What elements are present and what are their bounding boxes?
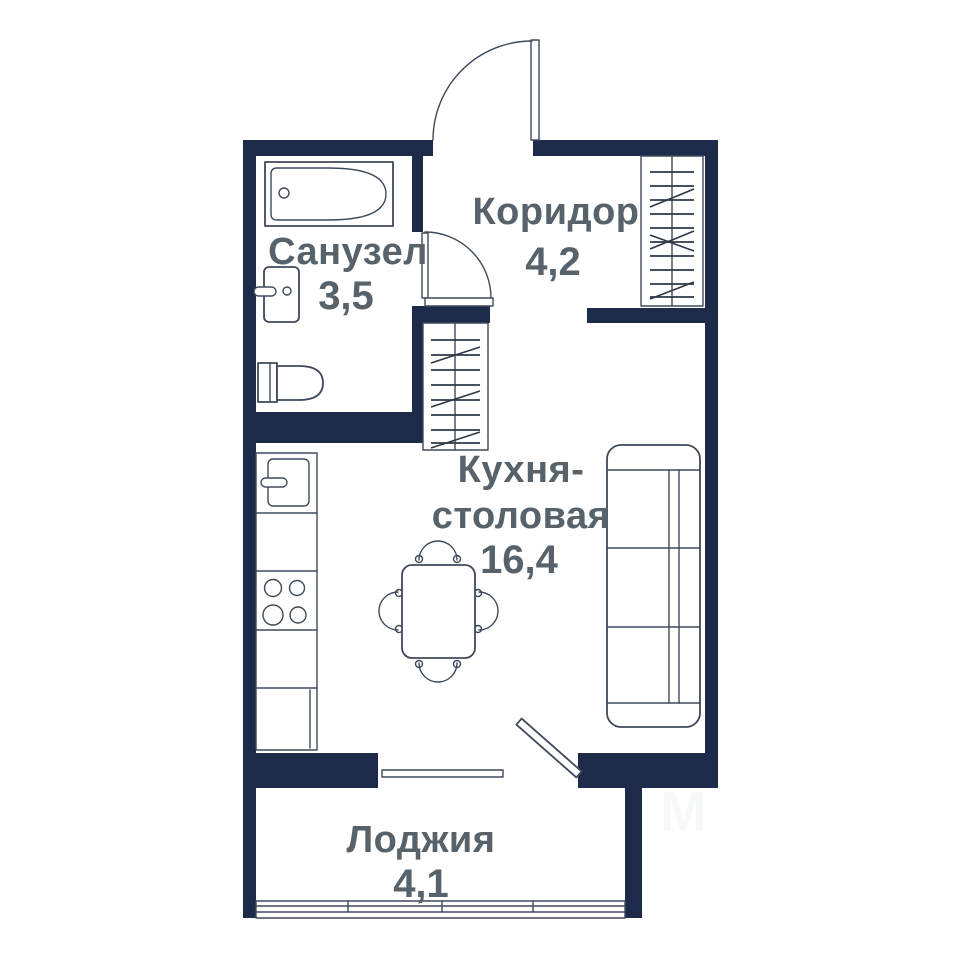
bathroom-door — [422, 232, 493, 306]
wall-loggia-right — [625, 788, 642, 918]
entrance-door-swing-arc — [433, 41, 532, 140]
loggia-area: 4,1 — [393, 862, 449, 906]
chair-left — [379, 590, 403, 633]
chair-right — [475, 590, 499, 633]
kitchen-counter — [256, 453, 317, 750]
wall-right — [705, 140, 718, 788]
wall-corridor-south — [587, 308, 718, 323]
kitchen-window — [382, 770, 503, 777]
sofa-outline — [607, 445, 700, 727]
wardrobe-corridor — [641, 156, 703, 306]
kitchen-label-line1: Кухня- — [458, 449, 585, 491]
sink — [254, 267, 299, 322]
wall-bathroom-corridor — [412, 156, 423, 232]
sink-faucet — [254, 287, 276, 296]
chair-top — [416, 541, 461, 563]
toilet — [258, 363, 323, 402]
bathroom-area: 3,5 — [318, 274, 374, 318]
sofa — [607, 445, 700, 727]
floor-plan-svg: Санузел 3,5 Коридор 4,2 Кухня- столовая … — [0, 0, 960, 960]
bathtub — [265, 162, 393, 226]
kitchen-area: 16,4 — [480, 538, 559, 582]
corridor-area: 4,2 — [525, 240, 581, 284]
kitchen-fixtures — [256, 453, 317, 750]
balcony-door-leaf — [516, 719, 581, 778]
bathtub-outline — [265, 162, 393, 226]
entrance-door — [433, 40, 539, 140]
entrance-door-leaf — [531, 40, 539, 140]
corridor-label: Коридор — [472, 191, 639, 233]
kitchen-counter-outline — [256, 453, 317, 750]
chair-back — [379, 592, 398, 630]
wall-kitchen-south-left — [243, 753, 378, 788]
watermark: M — [660, 779, 707, 842]
kitchen-label-line2: столовая — [432, 495, 611, 537]
bathroom-label: Санузел — [268, 231, 428, 273]
toilet-tank — [258, 363, 277, 402]
wall-top-right — [533, 140, 718, 156]
fridge-handle — [261, 478, 287, 487]
wall-bathroom-south — [243, 412, 423, 443]
bathroom-door-leaf-open — [425, 298, 493, 306]
bathroom-door-swing-arc — [425, 232, 491, 298]
wall-below-bathroom-door — [412, 306, 490, 323]
chair-back — [479, 592, 498, 630]
chair-bottom — [416, 661, 461, 683]
wardrobe-hall — [423, 323, 488, 450]
toilet-bowl — [277, 366, 323, 400]
floor-plan-canvas: Санузел 3,5 Коридор 4,2 Кухня- столовая … — [0, 0, 960, 960]
chair-back — [419, 541, 457, 560]
chair-back — [419, 663, 457, 682]
dining-table — [402, 565, 475, 658]
wall-left — [243, 140, 256, 918]
wall-top-left — [243, 140, 433, 156]
loggia-label: Лоджия — [347, 819, 496, 861]
